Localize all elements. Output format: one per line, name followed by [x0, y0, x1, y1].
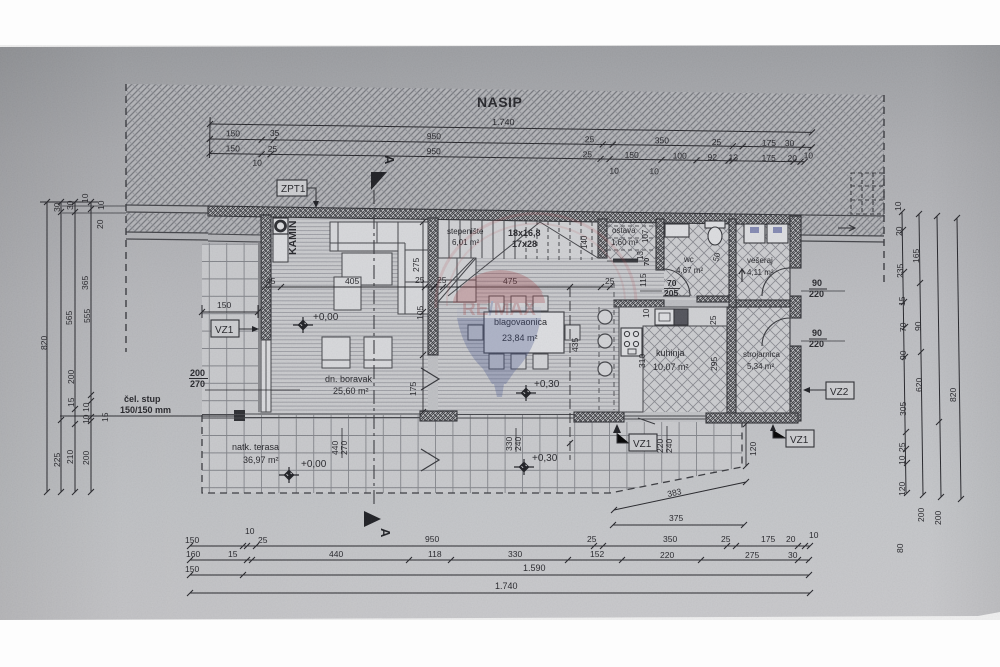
svg-text:RE/MAX: RE/MAX — [462, 299, 536, 320]
